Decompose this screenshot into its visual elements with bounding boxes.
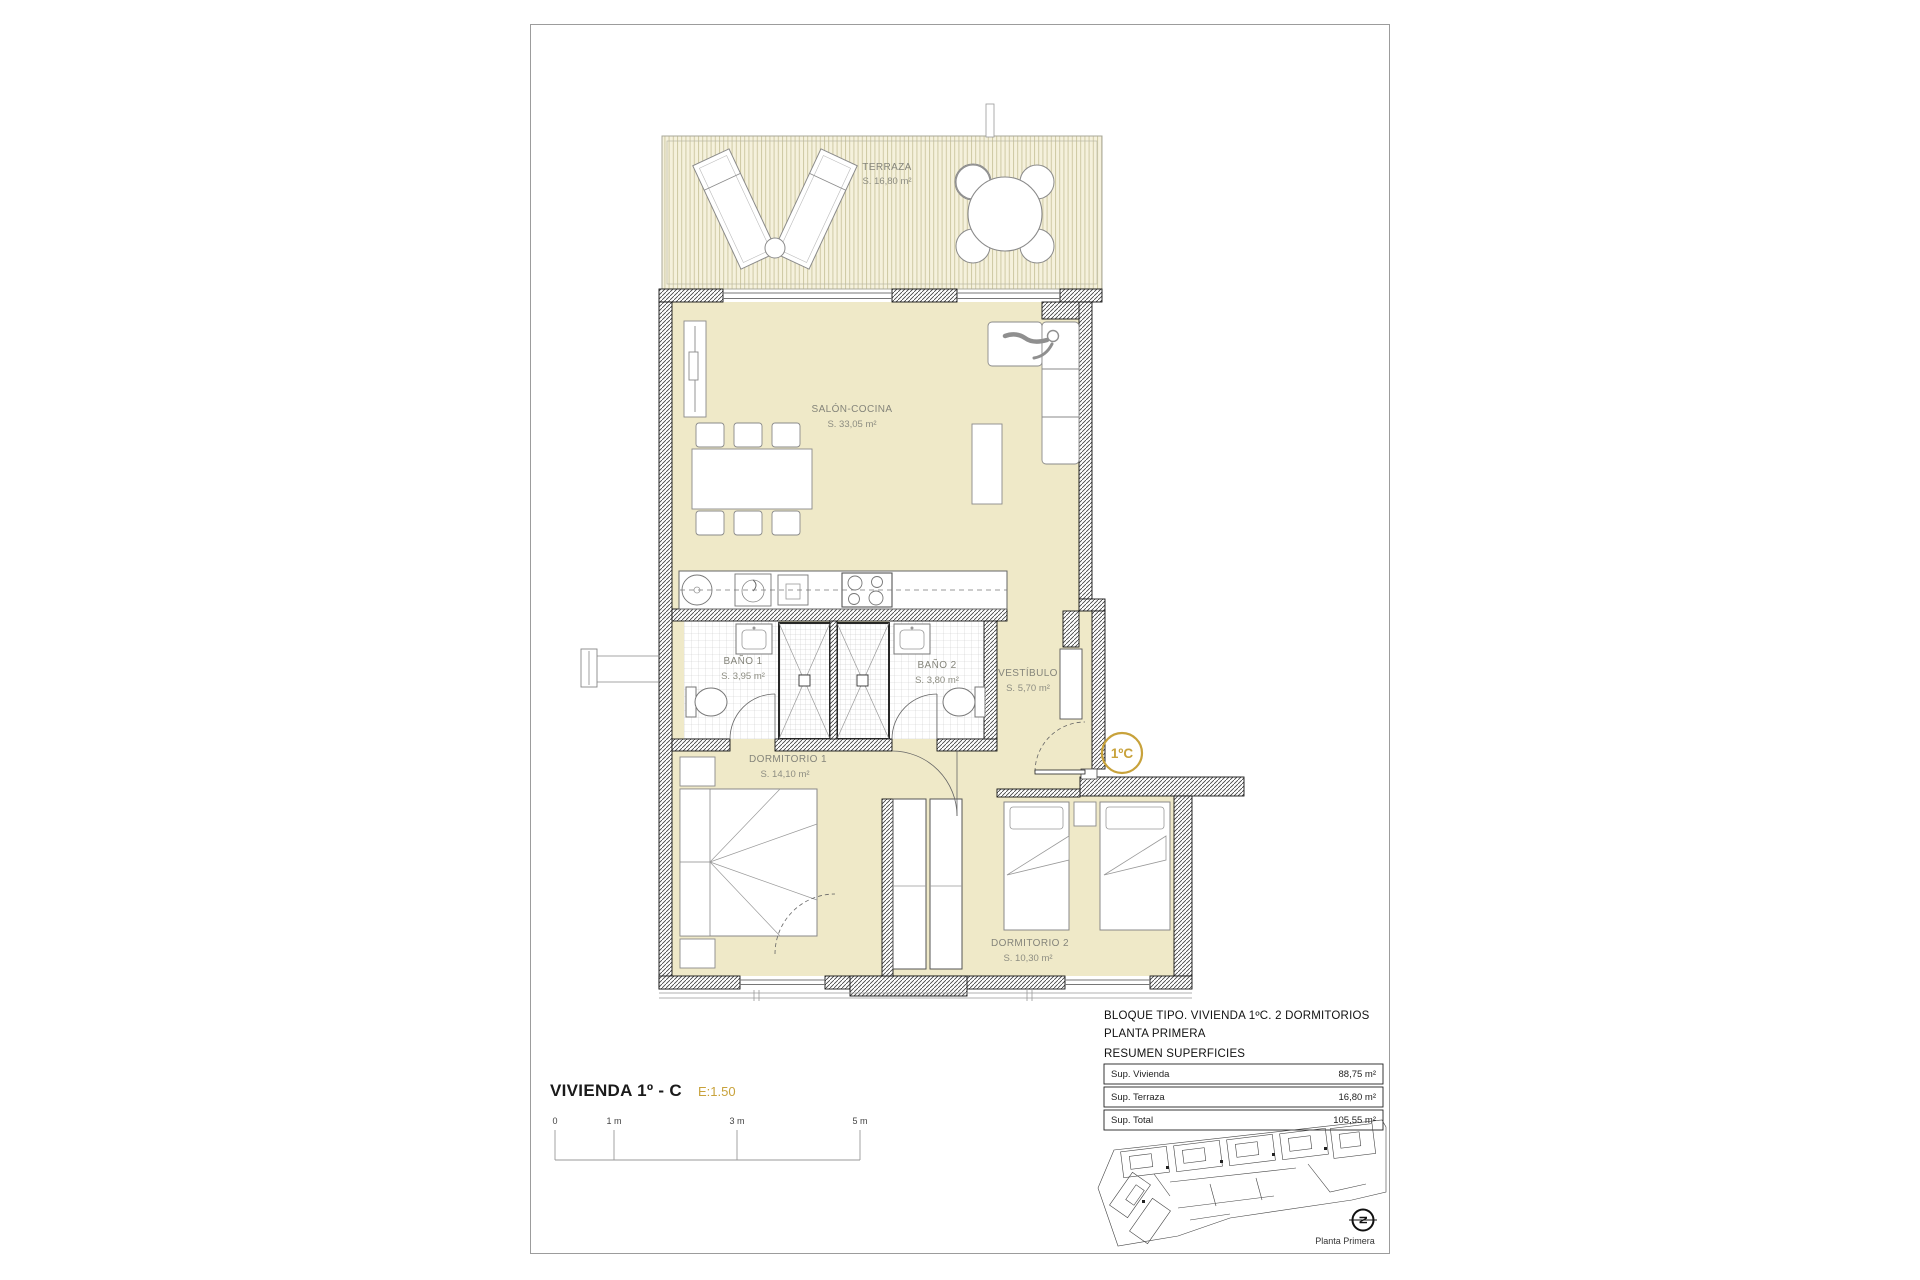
room-area-dorm2: S. 10,30 m² [1003, 953, 1052, 964]
cooktop [842, 573, 892, 607]
title-block-line3: RESUMEN SUPERFICIES [1104, 1048, 1245, 1060]
shower-tray [779, 623, 830, 739]
room-label-salon: SALÓN-COCINA [812, 402, 893, 415]
bedroom1-furniture [680, 757, 817, 968]
room-area-bano1: S. 3,95 m² [721, 671, 765, 682]
table-row: Sup. Vivienda 88,75 m² [1104, 1064, 1383, 1084]
unit-badge-label: 1ºC [1111, 746, 1133, 761]
shower-tray [837, 623, 889, 739]
toilet [943, 687, 985, 717]
nightstand [1074, 802, 1096, 826]
north-letter: N [1358, 1216, 1370, 1224]
toilet [686, 687, 727, 717]
sideboard [684, 321, 706, 417]
room-area-salon: S. 33,05 m² [827, 419, 876, 430]
room-area-dorm1: S. 14,10 m² [760, 769, 809, 780]
nightstand [680, 939, 715, 968]
room-label-vestibulo: VESTÍBULO [998, 666, 1058, 679]
side-table [765, 238, 785, 258]
table-cell-label: Sup. Total [1111, 1115, 1153, 1126]
surface-table: Sup. Vivienda 88,75 m² Sup. Terraza 16,8… [1104, 1064, 1383, 1130]
scale-tick-1: 1 m [606, 1116, 621, 1126]
terrace-table-set [955, 164, 1054, 263]
table-cell-value: 105,55 m² [1333, 1115, 1376, 1126]
minimap-caption: Planta Primera [1315, 1236, 1375, 1246]
title-block-line1: BLOQUE TIPO. VIVIENDA 1ºC. 2 DORMITORIOS [1104, 1010, 1370, 1022]
room-label-bano2: BAÑO 2 [917, 658, 956, 671]
room-label-dorm2: DORMITORIO 2 [991, 938, 1069, 949]
room-area-bano2: S. 3,80 m² [915, 675, 959, 686]
kitchen-counter [679, 571, 1007, 609]
table-cell-value: 88,75 m² [1339, 1069, 1377, 1080]
table-cell-label: Sup. Vivienda [1111, 1069, 1170, 1080]
table-cell-value: 16,80 m² [1339, 1092, 1377, 1103]
vestibule-closet [1060, 649, 1082, 719]
nightstand [680, 757, 715, 786]
room-area-vestibulo: S. 5,70 m² [1006, 683, 1050, 694]
single-bed [1004, 802, 1069, 930]
room-label-dorm1: DORMITORIO 1 [749, 754, 827, 765]
scale-tick-3: 3 m [729, 1116, 744, 1126]
service-shaft [986, 104, 994, 137]
room-area-terraza: S. 16,80 m² [862, 176, 911, 187]
floor-plan-drawing: TERRAZA S. 16,80 m² SALÓN-COCINA S. 33,0… [530, 24, 1390, 1254]
plan-sheet: TERRAZA S. 16,80 m² SALÓN-COCINA S. 33,0… [530, 24, 1390, 1254]
washbasin [894, 624, 930, 654]
plan-title: VIVIENDA 1º - C E:1.50 [550, 1081, 736, 1100]
washbasin [736, 624, 772, 654]
dining-set [692, 423, 812, 535]
scale-tick-0: 0 [552, 1116, 557, 1126]
coffee-table [972, 424, 1002, 504]
room-label-bano1: BAÑO 1 [723, 654, 762, 667]
double-bed [680, 789, 817, 936]
title-block-line2: PLANTA PRIMERA [1104, 1028, 1206, 1040]
room-label-terraza: TERRAZA [862, 162, 911, 173]
single-bed [1100, 802, 1170, 930]
table-cell-label: Sup. Terraza [1111, 1092, 1165, 1103]
scale-tick-5: 5 m [852, 1116, 867, 1126]
table-row: Sup. Total 105,55 m² [1104, 1110, 1383, 1130]
table-row: Sup. Terraza 16,80 m² [1104, 1087, 1383, 1107]
scale-label: E:1.50 [698, 1084, 736, 1099]
page-title: VIVIENDA 1º - C [550, 1081, 682, 1100]
